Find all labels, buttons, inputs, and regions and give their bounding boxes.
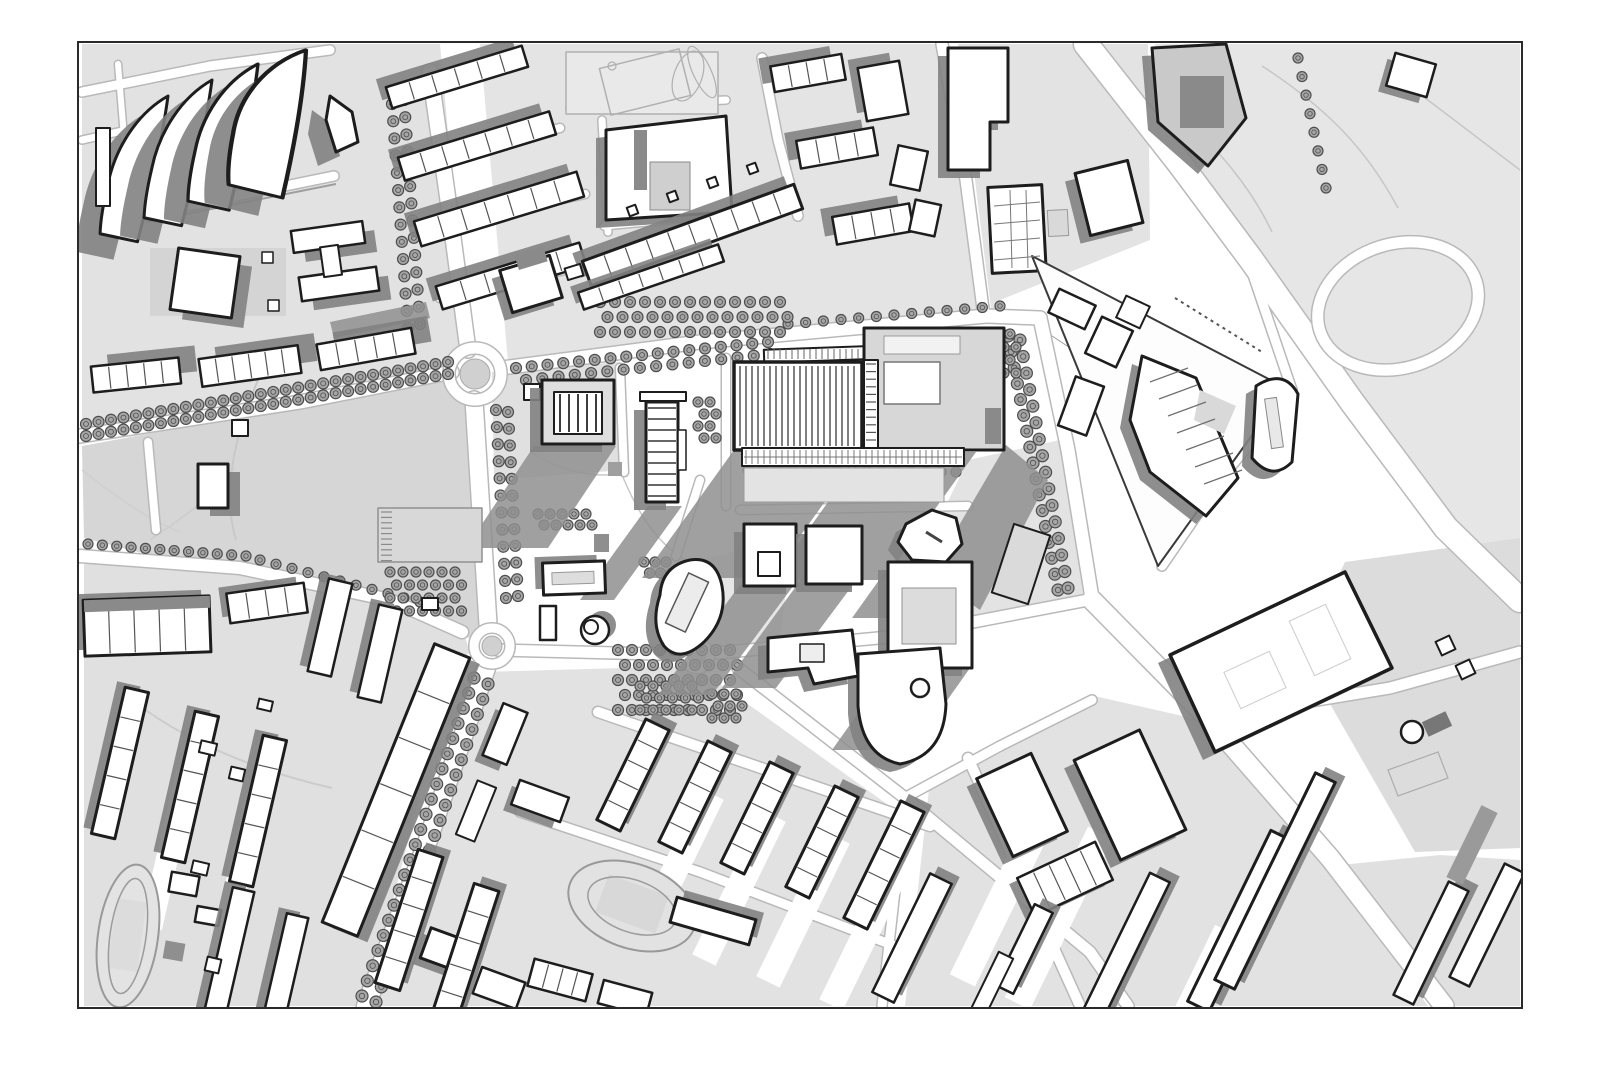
tree-icon [457,580,467,590]
tree-icon [93,428,104,439]
tree-icon [1005,355,1015,365]
tree-icon [661,705,671,715]
tree-icon [511,363,522,374]
tree-icon [924,307,934,317]
building [229,767,245,782]
tree-icon [444,606,454,616]
tree-icon [367,960,379,972]
tree-icon [602,312,613,323]
tree-icon [731,689,741,699]
tree-icon [1036,450,1048,462]
tree-icon [760,297,771,308]
tree-icon [763,337,774,348]
building [864,360,878,450]
tree-icon [241,551,251,561]
tree-icon [610,327,621,338]
tree-icon [1024,384,1036,396]
building [608,462,622,476]
tree-icon [155,418,166,429]
building [1047,209,1068,236]
tree-icon [625,297,636,308]
tree-icon [613,645,624,656]
tree-icon [711,433,721,443]
tree-icon [406,198,417,209]
tree-icon [716,354,727,365]
tree-icon [205,397,216,408]
tree-icon [1011,368,1021,378]
tree-icon [380,367,391,378]
tree-icon [457,606,467,616]
roundabout-island [482,636,502,656]
tree-icon [620,660,631,671]
tree-icon [1005,329,1015,339]
tree-icon [693,421,703,431]
tree-icon [361,975,373,987]
tree-icon [398,593,408,603]
tree-icon [737,701,747,711]
tree-icon [243,391,254,402]
tree-icon [143,420,154,431]
tree-icon [355,383,366,394]
tree-icon [1321,183,1331,193]
tree-icon [705,397,715,407]
tree-icon [401,129,412,140]
tree-icon [477,693,489,705]
tree-icon [747,338,758,349]
tree-icon [504,440,515,451]
building [734,362,862,450]
tree-icon [450,593,460,603]
tree-icon [942,306,952,316]
tree-icon [81,431,92,442]
building [758,552,780,576]
tree-icon [405,580,415,590]
tree-icon [118,412,129,423]
tree-icon [318,390,329,401]
tree-icon [526,361,537,372]
tree-icon [400,112,411,123]
tree-icon [700,297,711,308]
building [378,508,482,562]
tree-icon [782,312,793,323]
building [678,430,686,470]
tree-icon [450,567,460,577]
tree-icon [501,593,512,604]
building [262,252,273,263]
tree-icon [168,404,179,415]
tree-icon [410,250,421,261]
tree-icon [494,473,505,484]
tree-icon [699,409,709,419]
tree-icon [1317,164,1327,174]
tree-icon [687,705,697,715]
tree-icon [1027,400,1039,412]
tree-icon [393,365,404,376]
tree-icon [140,543,150,553]
tree-icon [683,357,694,368]
tree-icon [1056,549,1068,561]
tree-icon [1011,378,1023,390]
tree-icon [617,312,628,323]
tree-icon [399,271,410,282]
road [620,368,624,472]
tree-icon [437,567,447,577]
tree-icon [748,350,759,361]
tree-icon [705,421,715,431]
tree-icon [635,681,645,691]
building [627,205,639,217]
tree-icon [255,555,265,565]
tree-icon [722,312,733,323]
building [707,177,719,189]
tree-icon [255,401,266,412]
tree-icon [752,312,763,323]
building [909,200,941,237]
tree-icon [685,327,696,338]
tree-icon [625,327,636,338]
tree-icon [493,456,504,467]
tree-icon [1059,565,1071,577]
tree-icon [205,409,216,420]
building [985,408,1001,444]
tree-icon [581,509,591,519]
tree-icon [699,433,709,443]
building [667,191,679,203]
tree-icon [1301,90,1311,100]
tree-icon [640,297,651,308]
tree-icon [587,520,597,530]
building [191,860,209,875]
tree-icon [418,580,428,590]
tree-icon [1049,516,1061,528]
tree-icon [425,793,437,805]
tree-icon [574,356,585,367]
tree-icon [83,539,93,549]
tree-icon [305,392,316,403]
tree-icon [648,660,659,671]
tree-icon [268,386,279,397]
building [552,571,594,584]
tree-icon [715,297,726,308]
tree-icon [431,580,441,590]
tree-icon [960,304,970,314]
tree-icon [725,701,735,711]
tree-icon [995,301,1005,311]
tree-icon [707,312,718,323]
tree-icon [370,996,382,1008]
tree-icon [368,381,379,392]
tree-icon [198,548,208,558]
tree-icon [130,410,141,421]
tree-icon [218,407,229,418]
tree-icon [719,713,729,723]
tree-icon [1018,409,1030,421]
tree-icon [343,386,354,397]
tree-icon [293,394,304,405]
tree-icon [443,369,454,380]
tree-icon [542,359,553,370]
tree-icon [492,439,503,450]
tree-icon [1313,146,1323,156]
tree-icon [558,358,569,369]
building [858,648,946,764]
building [911,679,929,697]
tree-icon [1062,582,1074,594]
tree-icon [230,405,241,416]
tree-icon [730,297,741,308]
tree-icon [700,343,711,354]
tree-icon [1297,72,1307,82]
building [1401,721,1423,743]
tree-icon [1046,499,1058,511]
tree-icon [977,303,987,313]
tree-icon [356,990,368,1002]
tree-icon [602,366,613,377]
tree-icon [1017,351,1029,363]
tree-icon [368,369,379,380]
tree-icon [93,416,104,427]
tree-icon [392,580,402,590]
tree-icon [97,540,107,550]
tree-icon [271,559,281,569]
tree-icon [81,419,92,430]
tree-icon [287,563,297,573]
building [1180,76,1224,128]
tree-icon [420,808,432,820]
building [257,699,273,712]
tree-icon [394,202,405,213]
tree-icon [503,423,514,434]
tree-icon [775,327,786,338]
tree-icon [400,288,411,299]
tree-icon [367,584,377,594]
tree-icon [745,327,756,338]
tree-icon [398,254,409,265]
tree-icon [642,693,652,703]
tree-icon [450,769,462,781]
tree-icon [330,376,341,387]
building [640,392,686,401]
tree-icon [243,403,254,414]
tree-icon [575,520,585,530]
tree-icon [118,424,129,435]
tree-icon [505,457,516,468]
tree-icon [180,413,191,424]
building [232,420,248,436]
tree-icon [620,690,631,701]
tree-icon [395,219,406,230]
tree-icon [1052,532,1064,544]
tree-icon [513,591,524,602]
tree-icon [627,645,638,656]
tree-icon [767,312,778,323]
tree-icon [1033,433,1045,445]
tree-icon [684,345,695,356]
tree-icon [388,116,399,127]
tree-icon [1309,127,1319,137]
tree-icon [655,297,666,308]
tree-icon [693,397,703,407]
tree-icon [355,371,366,382]
tree-icon [130,422,141,433]
tree-icon [415,823,427,835]
tree-icon [699,355,710,366]
tree-icon [105,426,116,437]
tree-icon [707,713,717,723]
tree-icon [889,310,899,320]
tree-icon [434,814,446,826]
tree-icon [634,660,645,671]
building [890,145,928,190]
tree-icon [418,361,429,372]
tree-icon [511,557,522,568]
tree-icon [491,422,502,433]
tree-icon [621,351,632,362]
tree-icon [184,547,194,557]
tree-icon [640,327,651,338]
tree-icon [586,368,597,379]
tree-icon [685,297,696,308]
building [884,336,960,354]
tree-icon [393,377,404,388]
tree-icon [711,409,721,419]
tree-icon [730,327,741,338]
site-plan-page [0,0,1598,1065]
building [170,248,240,318]
tree-icon [155,406,166,417]
tree-icon [613,675,624,686]
tree-icon [670,297,681,308]
tree-icon [444,580,454,590]
tree-icon [651,361,662,372]
tree-icon [455,754,467,766]
tree-icon [1021,425,1033,437]
tree-icon [393,185,404,196]
tree-icon [466,723,478,735]
tree-icon [692,312,703,323]
tree-icon [677,312,688,323]
tree-icon [1293,53,1303,63]
tree-icon [126,542,136,552]
tree-icon [227,550,237,560]
tree-icon [1015,394,1027,406]
building [806,526,862,584]
tree-icon [372,945,384,957]
building [566,52,718,114]
building [800,644,824,662]
tree-icon [318,378,329,389]
tree-icon [637,350,648,361]
tree-icon [405,363,416,374]
tree-icon [745,297,756,308]
building [163,940,186,961]
tree-icon [471,708,483,720]
tree-icon [818,316,828,326]
building [198,464,228,508]
building [422,598,438,610]
tree-icon [280,384,291,395]
tree-icon [491,405,502,416]
tree-icon [411,267,422,278]
tree-icon [398,567,408,577]
tree-icon [305,380,316,391]
tree-icon [715,327,726,338]
tree-icon [801,318,811,328]
tree-icon [500,575,511,586]
tree-icon [635,705,645,715]
tree-icon [396,236,407,247]
building [594,534,609,552]
tree-icon [412,284,423,295]
tree-icon [503,407,514,418]
tree-icon [180,401,191,412]
tree-icon [193,411,204,422]
tree-icon [719,689,729,699]
tree-icon [418,373,429,384]
building [747,163,759,175]
tree-icon [499,558,510,569]
building [205,957,222,974]
building [744,468,944,502]
tree-icon [482,678,494,690]
tree-icon [303,568,313,578]
tree-icon [589,354,600,365]
tree-icon [424,567,434,577]
tree-icon [647,312,658,323]
tree-icon [697,705,708,716]
tree-icon [1305,109,1315,119]
tree-icon [193,399,204,410]
tree-icon [405,181,416,192]
tree-icon [775,297,786,308]
tree-icon [760,327,771,338]
tree-icon [411,593,421,603]
tree-icon [655,327,666,338]
tree-icon [112,541,122,551]
tree-icon [330,388,341,399]
tree-icon [737,312,748,323]
tree-icon [255,389,266,400]
tree-icon [854,313,864,323]
building [902,588,956,644]
tree-icon [212,549,222,559]
tree-icon [1020,367,1032,379]
tree-icon [385,567,395,577]
tree-icon [667,359,678,370]
tree-icon [105,414,116,425]
tree-icon [230,393,241,404]
building [268,300,279,311]
building [634,130,647,190]
tree-icon [512,574,523,585]
tree-icon [169,546,179,556]
tree-icon [430,359,441,370]
tree-icon [731,340,742,351]
tree-icon [385,593,395,603]
tree-icon [155,544,165,554]
tree-icon [1030,417,1042,429]
roundabout-island [460,359,490,389]
building [320,245,342,277]
tree-icon [461,739,473,751]
tree-icon [280,396,291,407]
tree-icon [405,606,415,616]
tree-icon [405,375,416,386]
tree-icon [268,398,279,409]
tree-icon [731,713,741,723]
tree-icon [595,327,606,338]
tree-icon [389,133,400,144]
